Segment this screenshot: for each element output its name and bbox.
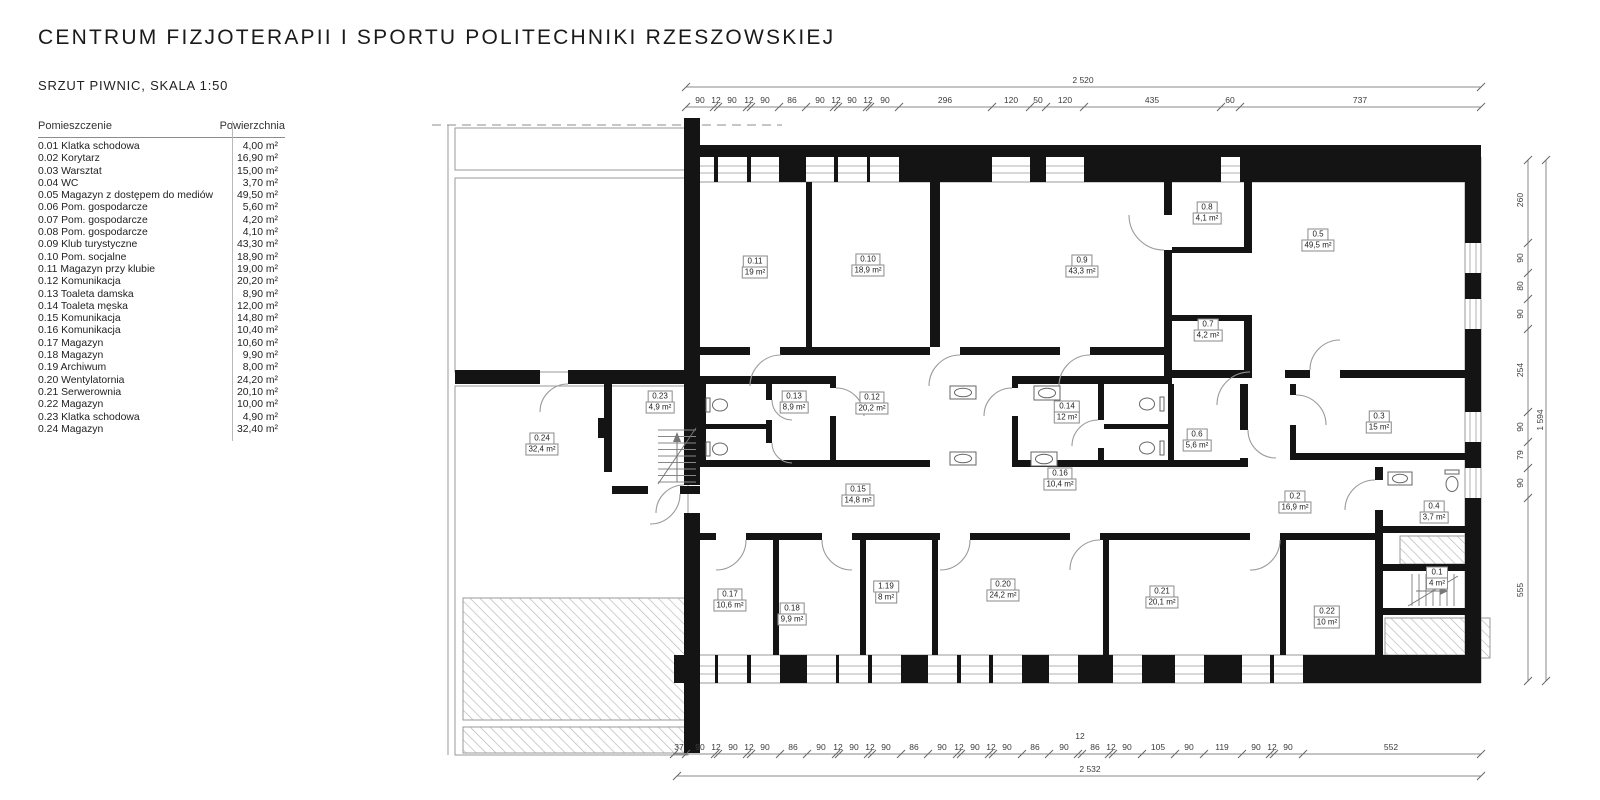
- stairs-secondary: [1408, 574, 1458, 606]
- toilet-icon: [1140, 441, 1165, 455]
- toilet-icon: [1140, 397, 1165, 411]
- hatched-areas: [463, 536, 1490, 753]
- wall-face-lines: [684, 157, 1481, 683]
- sink-icon: [1031, 452, 1057, 466]
- sink-icon: [950, 452, 976, 465]
- fixtures: [706, 386, 1459, 492]
- toilet-icon: [706, 398, 728, 412]
- toilet-icon: [1445, 470, 1459, 492]
- stairs-main: [658, 428, 696, 484]
- floor-plan-sheet: { "title": "CENTRUM FIZJOTERAPII I SPORT…: [0, 0, 1600, 800]
- floor-plan-drawing: [0, 0, 1600, 800]
- sink-icon: [1034, 386, 1060, 400]
- sink-icon: [950, 386, 976, 399]
- toilet-icon: [706, 442, 728, 456]
- sink-icon: [1388, 472, 1412, 485]
- window-band: [674, 157, 1481, 683]
